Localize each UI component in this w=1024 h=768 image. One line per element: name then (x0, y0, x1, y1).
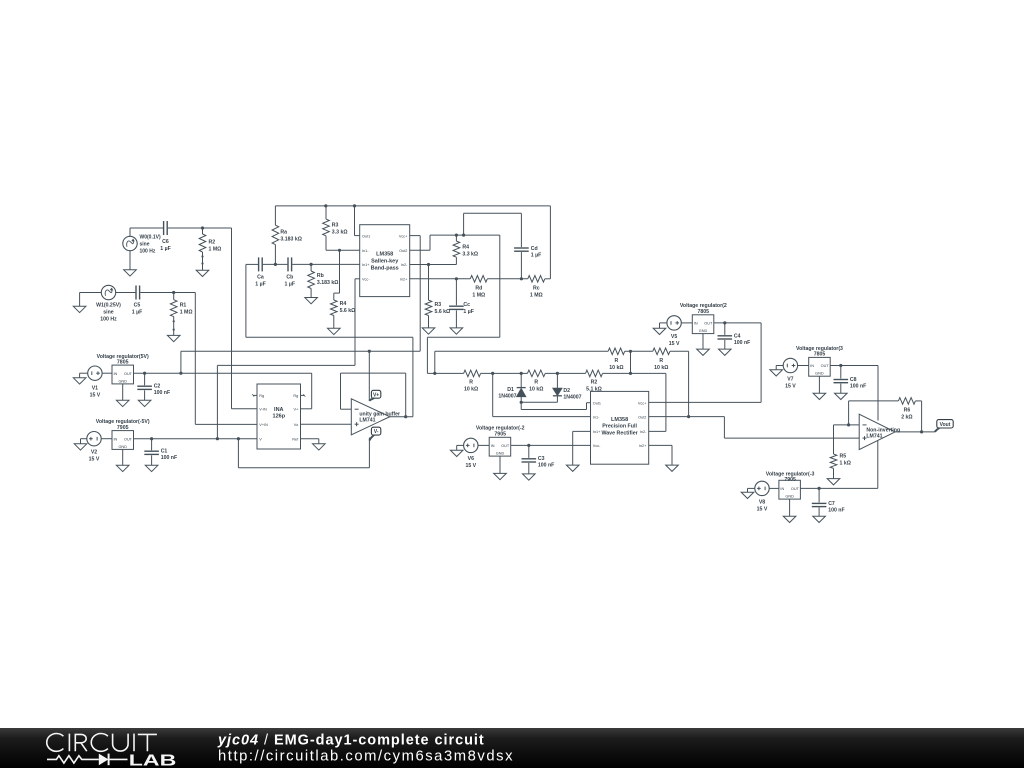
svg-text:OUT: OUT (124, 372, 133, 376)
svg-text:15 V: 15 V (757, 507, 768, 513)
svg-text:V-IN: V-IN (259, 408, 267, 412)
svg-text:R: R (615, 358, 619, 364)
svg-text:V6: V6 (468, 456, 474, 462)
svg-text:V+: V+ (373, 392, 379, 398)
svg-text:V-: V- (374, 429, 379, 435)
svg-text:1 MΩ: 1 MΩ (209, 247, 222, 253)
svg-text:OUT: OUT (501, 444, 510, 448)
svg-text:1 µF: 1 µF (531, 252, 541, 258)
svg-text:W1(0.25V): W1(0.25V) (96, 303, 121, 309)
svg-text:R3: R3 (435, 302, 442, 308)
svg-text:In2+: In2+ (639, 444, 647, 448)
svg-text:Vout: Vout (940, 422, 951, 428)
svg-text:Ca: Ca (257, 275, 264, 281)
svg-text:126p: 126p (273, 414, 286, 420)
svg-text:1 MΩ: 1 MΩ (530, 292, 543, 298)
svg-text:OUT: OUT (821, 364, 830, 368)
svg-text:Out1: Out1 (362, 234, 370, 238)
svg-text:Rg: Rg (259, 394, 264, 398)
svg-text:100 nF: 100 nF (154, 390, 170, 396)
svg-text:http://circuitlab.com/cym6sa3m: http://circuitlab.com/cym6sa3m8vdsx (218, 748, 514, 764)
svg-text:Cd: Cd (531, 246, 538, 252)
svg-text:3.3 kΩ: 3.3 kΩ (332, 230, 348, 236)
svg-text:10 kΩ: 10 kΩ (464, 386, 478, 392)
svg-text:yjc04 / EMG-day1-complete circ: yjc04 / EMG-day1-complete circuit (217, 733, 485, 749)
svg-text:100 nF: 100 nF (850, 384, 866, 390)
svg-text:LAB: LAB (129, 752, 177, 768)
svg-text:V+: V+ (293, 408, 299, 412)
svg-text:OUT: OUT (704, 322, 713, 326)
svg-text:sine: sine (103, 310, 113, 316)
svg-text:OUT: OUT (124, 437, 133, 441)
svg-text:3.3 kΩ: 3.3 kΩ (462, 252, 478, 258)
svg-text:15 V: 15 V (669, 341, 680, 347)
svg-text:Precision Full: Precision Full (602, 424, 637, 430)
svg-text:5.6 kΩ: 5.6 kΩ (435, 309, 451, 315)
svg-text:In1+: In1+ (362, 263, 370, 267)
svg-text:Vcc+: Vcc+ (399, 234, 408, 238)
svg-text:Out2: Out2 (638, 415, 646, 419)
svg-text:7805: 7805 (814, 352, 826, 358)
svg-text:1 MΩ: 1 MΩ (472, 292, 485, 298)
svg-text:1N4007: 1N4007 (498, 393, 516, 399)
svg-text:2 kΩ: 2 kΩ (901, 414, 912, 420)
svg-text:Vcc+: Vcc+ (638, 402, 647, 406)
svg-text:1 kΩ: 1 kΩ (840, 461, 851, 467)
svg-text:In1+: In1+ (593, 430, 601, 434)
svg-text:V7: V7 (787, 377, 793, 383)
svg-text:LM741: LM741 (359, 417, 375, 423)
svg-text:C7: C7 (828, 501, 835, 507)
svg-text:W0(0.1V): W0(0.1V) (140, 235, 161, 241)
svg-text:Rb: Rb (317, 273, 324, 279)
svg-text:Vcc-: Vcc- (362, 278, 370, 282)
svg-text:OUT: OUT (791, 487, 800, 491)
svg-text:Rg: Rg (293, 394, 298, 398)
svg-text:D1: D1 (507, 387, 514, 393)
svg-text:GND: GND (118, 379, 127, 383)
svg-text:Vcc-: Vcc- (593, 444, 601, 448)
svg-text:100 nF: 100 nF (828, 508, 844, 514)
svg-text:10 kΩ: 10 kΩ (609, 365, 623, 371)
svg-text:Rd: Rd (475, 285, 482, 291)
svg-text:Sallen-key: Sallen-key (371, 259, 399, 265)
svg-text:V8: V8 (759, 500, 765, 506)
svg-text:IN: IN (780, 487, 784, 491)
svg-text:In1-: In1- (593, 415, 600, 419)
svg-text:V+IN: V+IN (259, 423, 268, 427)
svg-text:R1: R1 (180, 303, 187, 309)
svg-text:R3: R3 (332, 223, 339, 229)
svg-text:LM358: LM358 (611, 417, 628, 423)
svg-text:IN: IN (694, 322, 698, 326)
svg-text:In2-: In2- (640, 430, 647, 434)
svg-text:sine: sine (140, 242, 150, 248)
svg-text:10 kΩ: 10 kΩ (529, 386, 543, 392)
svg-text:C2: C2 (154, 384, 161, 390)
svg-text:3.183 kΩ: 3.183 kΩ (280, 237, 301, 243)
svg-text:IN: IN (114, 372, 118, 376)
svg-text:1 µF: 1 µF (463, 309, 473, 315)
svg-text:IN: IN (810, 364, 814, 368)
svg-text:1 µF: 1 µF (160, 246, 170, 252)
svg-text:3.183 kΩ: 3.183 kΩ (317, 280, 338, 286)
svg-text:15 V: 15 V (785, 384, 796, 390)
svg-text:Cb: Cb (286, 275, 293, 281)
svg-text:100 nF: 100 nF (161, 455, 177, 461)
svg-text:1 MΩ: 1 MΩ (180, 310, 193, 316)
svg-text:Out1: Out1 (593, 402, 601, 406)
svg-text:C1: C1 (161, 449, 168, 455)
svg-text:7905: 7905 (117, 425, 129, 431)
svg-text:7905: 7905 (494, 431, 506, 437)
svg-text:10 kΩ: 10 kΩ (654, 365, 668, 371)
svg-text:GND: GND (699, 329, 708, 333)
svg-text:C8: C8 (850, 377, 857, 383)
svg-text:R4: R4 (462, 245, 469, 251)
svg-text:Rc: Rc (533, 285, 540, 291)
svg-text:In2+: In2+ (400, 278, 408, 282)
svg-text:V: V (259, 438, 262, 442)
svg-text:C6: C6 (162, 239, 169, 245)
svg-text:In1-: In1- (362, 249, 369, 253)
svg-text:R: R (534, 379, 538, 385)
svg-text:100 nF: 100 nF (734, 340, 750, 346)
svg-text:Out2: Out2 (399, 249, 407, 253)
svg-text:C3: C3 (538, 456, 545, 462)
svg-text:R2: R2 (591, 379, 598, 385)
svg-text:LM741: LM741 (866, 433, 882, 439)
svg-text:IN: IN (114, 437, 118, 441)
svg-text:V2: V2 (91, 450, 97, 456)
svg-text:Cc: Cc (463, 302, 470, 308)
svg-text:V5: V5 (671, 334, 677, 340)
svg-text:D2: D2 (563, 388, 570, 394)
svg-text:Ref: Ref (292, 438, 299, 442)
svg-text:GND: GND (815, 372, 824, 376)
svg-text:Vo: Vo (294, 423, 298, 427)
svg-text:R4: R4 (340, 301, 347, 307)
svg-text:15 V: 15 V (89, 457, 100, 463)
svg-text:1 µF: 1 µF (132, 310, 142, 316)
svg-text:GND: GND (118, 445, 127, 449)
svg-text:15 V: 15 V (465, 463, 476, 469)
svg-text:C4: C4 (734, 334, 741, 340)
svg-text:1 µF: 1 µF (285, 282, 295, 288)
svg-text:Wave Rectifier: Wave Rectifier (601, 430, 637, 436)
svg-text:GND: GND (785, 495, 794, 499)
svg-text:IN: IN (491, 444, 495, 448)
svg-text:Ra: Ra (280, 230, 287, 236)
svg-text:R: R (659, 358, 663, 364)
svg-text:INA: INA (274, 407, 284, 413)
svg-text:7805: 7805 (698, 309, 710, 315)
svg-text:15 V: 15 V (90, 393, 101, 399)
svg-text:V1: V1 (92, 386, 98, 392)
svg-text:R: R (469, 379, 473, 385)
svg-text:1 µF: 1 µF (255, 282, 265, 288)
svg-text:C5: C5 (134, 303, 141, 309)
svg-text:1N4007: 1N4007 (563, 394, 581, 400)
svg-text:R5: R5 (840, 454, 847, 460)
svg-text:100 Hz: 100 Hz (140, 249, 156, 255)
svg-text:Band-pass: Band-pass (371, 266, 399, 272)
svg-text:In2-: In2- (401, 263, 408, 267)
svg-text:R6: R6 (904, 407, 911, 413)
svg-text:5.6 kΩ: 5.6 kΩ (340, 308, 356, 314)
svg-text:100 nF: 100 nF (538, 463, 554, 469)
svg-text:LM358: LM358 (376, 252, 393, 258)
svg-text:R2: R2 (209, 240, 216, 246)
svg-text:100 Hz: 100 Hz (100, 317, 117, 323)
svg-text:GND: GND (496, 452, 505, 456)
